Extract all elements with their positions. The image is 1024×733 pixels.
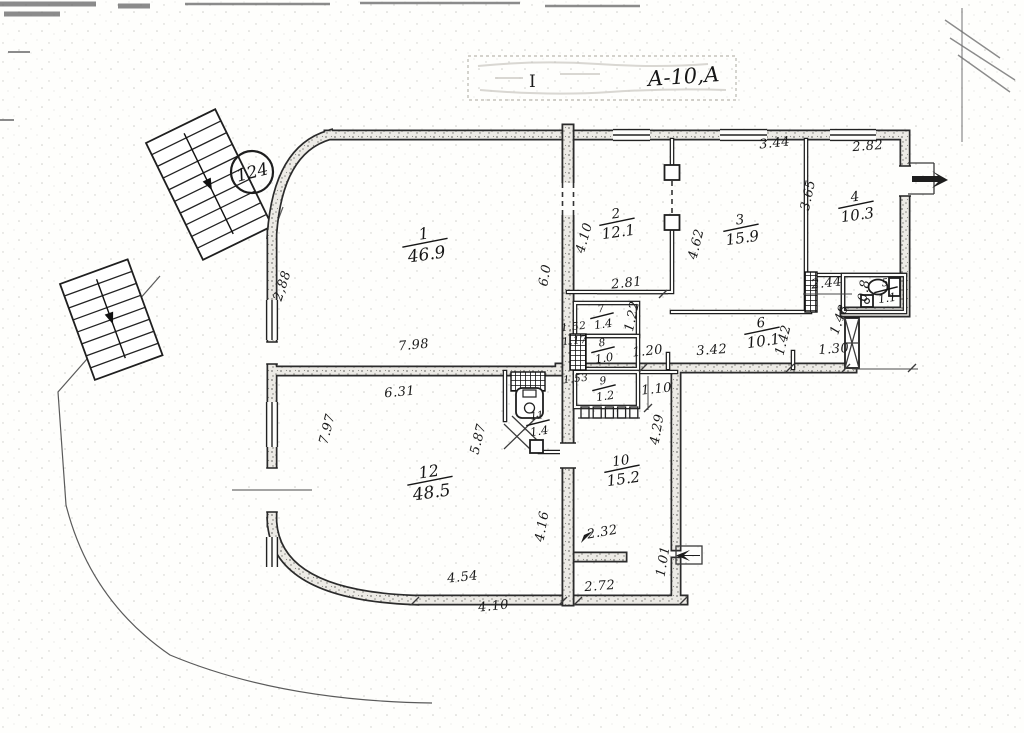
dimension-label: 2.72 xyxy=(583,578,616,595)
column-icon xyxy=(665,165,680,180)
room-area: 1.1 xyxy=(877,290,897,306)
room-area: 1.4 xyxy=(529,423,549,439)
room-area: 1.2 xyxy=(595,388,615,404)
dimension-label: 3.42 xyxy=(696,342,728,359)
dashed-opening xyxy=(560,183,576,215)
window-icon xyxy=(266,300,278,340)
wall-opening xyxy=(266,342,278,364)
window-icon xyxy=(613,129,650,141)
window-icon xyxy=(266,537,278,567)
wall-opening xyxy=(560,443,576,468)
window-icon xyxy=(266,402,278,447)
stamp-section-mark: I xyxy=(529,72,536,92)
floor-plan-canvas: I А-10,А xyxy=(0,0,1024,733)
dimension-label: 2.82 xyxy=(851,138,884,155)
room-area: 1.4 xyxy=(593,316,613,332)
wall-opening xyxy=(899,166,911,196)
dimension-label: 6.31 xyxy=(384,384,416,402)
column-icon xyxy=(665,215,680,230)
scanned-floor-plan-page: I А-10,А xyxy=(0,0,1024,733)
dimension-label: 1.30 xyxy=(818,341,850,358)
room-number: 11 xyxy=(530,409,545,423)
room-area: 1.0 xyxy=(594,350,614,366)
dimension-label: 7.98 xyxy=(398,337,430,355)
dimension-label: 0.8 xyxy=(856,278,874,302)
